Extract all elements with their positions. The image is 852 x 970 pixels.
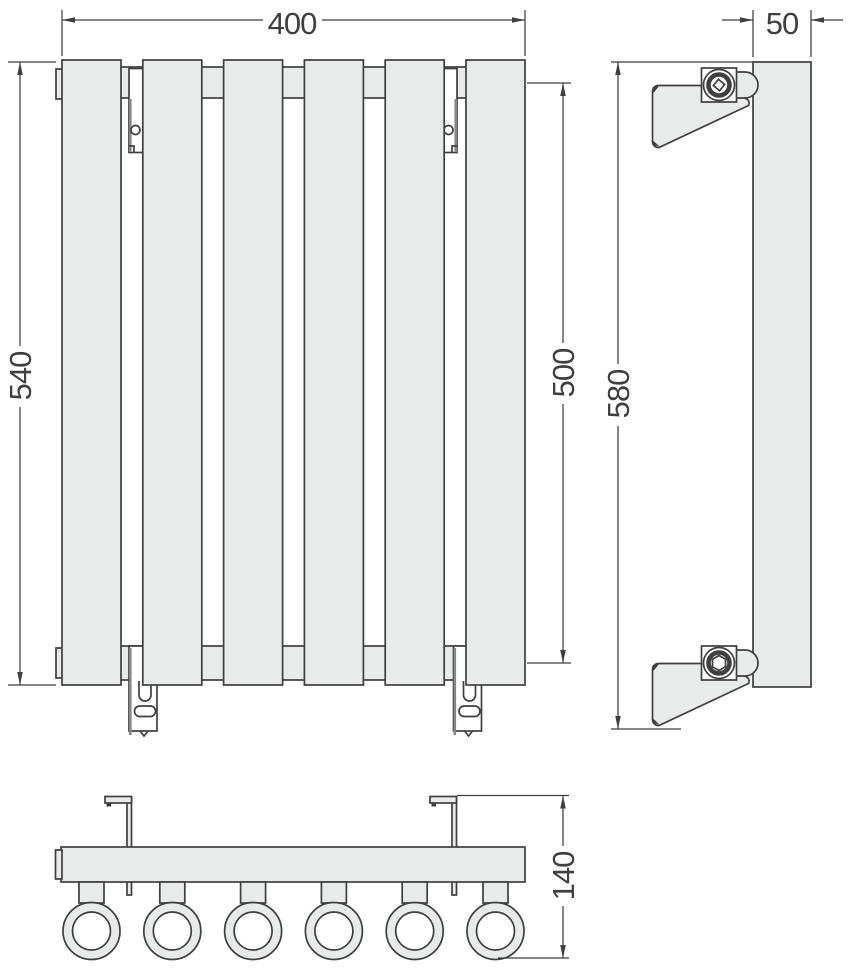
dim-label-front-width: 400 <box>268 6 317 41</box>
panel <box>62 60 121 685</box>
tube-stems <box>79 882 508 903</box>
side-bottom-fitting <box>702 646 759 680</box>
panel <box>385 60 444 685</box>
bottom-view <box>56 797 526 960</box>
dim-label-front-height: 540 <box>3 351 38 400</box>
stem <box>79 882 104 903</box>
side-top-fitting <box>702 68 759 102</box>
dimension-side-width: 50 <box>722 6 843 57</box>
stem <box>241 882 266 903</box>
tube-rings <box>63 903 524 960</box>
hex-nut <box>713 656 726 671</box>
panel <box>466 60 525 685</box>
front-view <box>56 60 525 736</box>
collector-bar <box>61 847 525 882</box>
dim-label-bottom-depth: 140 <box>546 851 581 900</box>
dim-label-connection-spacing: 500 <box>546 348 581 397</box>
side-view <box>652 62 811 726</box>
panel <box>143 60 202 685</box>
dimension-front-width: 400 <box>62 6 525 56</box>
dimension-front-height: 540 <box>3 62 56 685</box>
stem <box>321 882 346 903</box>
dim-label-side-height: 580 <box>601 369 636 418</box>
stem <box>160 882 185 903</box>
dimension-side-height: 580 <box>601 62 753 729</box>
collector-bar-end-tab <box>56 850 63 879</box>
panel-sections <box>62 60 525 685</box>
panel <box>224 60 283 685</box>
drawing-canvas: 400 540 500 580 50 <box>0 0 852 970</box>
stem <box>402 882 427 903</box>
technical-drawing: 400 540 500 580 50 <box>0 0 852 970</box>
dim-label-side-width: 50 <box>766 6 799 41</box>
panel <box>304 60 363 685</box>
dimension-connection-spacing: 500 <box>527 83 581 663</box>
side-panel <box>753 62 811 687</box>
stem <box>483 882 508 903</box>
